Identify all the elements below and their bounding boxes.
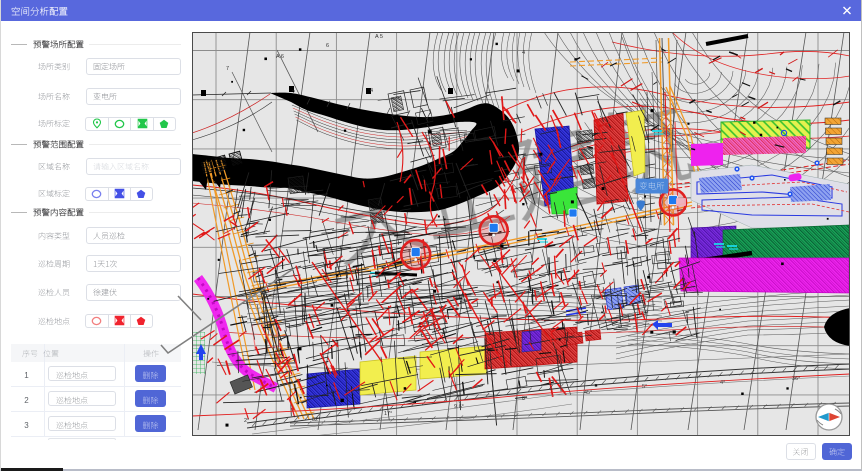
svg-text:8°: 8° xyxy=(522,396,527,402)
svg-text:17°: 17° xyxy=(384,411,392,417)
svg-text:2: 2 xyxy=(292,90,295,96)
svg-text:36°: 36° xyxy=(792,376,800,382)
svg-text:4: 4 xyxy=(370,88,373,94)
svg-text:A 5: A 5 xyxy=(375,34,383,40)
svg-text:45°: 45° xyxy=(584,390,592,396)
svg-text:9.6°: 9.6° xyxy=(454,404,464,410)
svg-text:A 6: A 6 xyxy=(276,54,284,60)
svg-text:7: 7 xyxy=(226,66,229,72)
svg-text:2°: 2° xyxy=(244,418,249,424)
svg-text:4°: 4° xyxy=(720,380,725,386)
svg-text:82°: 82° xyxy=(312,417,320,423)
svg-text:4: 4 xyxy=(522,50,525,56)
svg-text:6: 6 xyxy=(326,43,329,49)
svg-text:5°: 5° xyxy=(642,384,647,390)
